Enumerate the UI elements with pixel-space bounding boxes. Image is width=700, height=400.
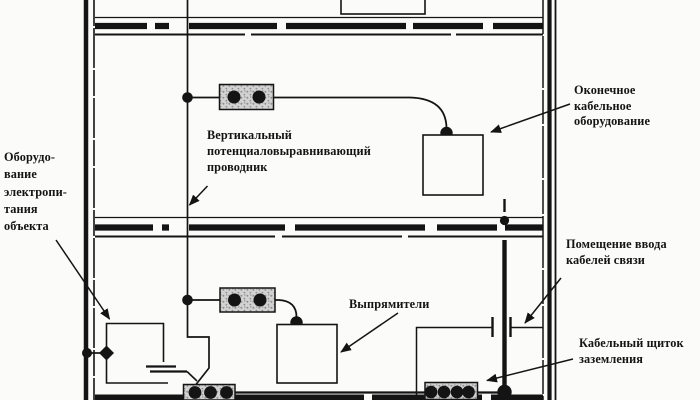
terminal-cable-equipment-box xyxy=(423,135,483,195)
busbar-terminal-dot xyxy=(254,294,267,307)
bond-diamond xyxy=(99,346,114,361)
grounding-busbar-left xyxy=(184,385,236,400)
busbar-terminal-dot xyxy=(228,91,241,104)
label-cable-entry-room: Помещение ввода кабелей связи xyxy=(566,237,667,268)
equalizing-busbar-upper xyxy=(220,85,274,110)
riser-junction-dot-upper xyxy=(182,92,193,103)
floor-slab-middle xyxy=(95,218,543,237)
leader-arrow-ground-panel xyxy=(487,359,573,381)
leader-arrow-terminal-equipment xyxy=(491,104,570,132)
grounding-diagram: Оборудо- вание электропи- тания объекта … xyxy=(0,0,700,400)
label-terminal-cable-equipment: Оконечное кабельное оборудование xyxy=(574,83,650,130)
upper-floor-equipment-box xyxy=(341,0,425,14)
leader-arrow-vertical-conductor xyxy=(190,186,208,205)
cable-riser-stub xyxy=(500,199,509,225)
leader-arrow-rectifiers xyxy=(341,313,398,352)
label-vertical-conductor: Вертикальный потенциаловыравнивающий про… xyxy=(207,127,371,175)
rectifier-box xyxy=(277,325,337,384)
right-wall xyxy=(543,0,556,400)
power-equipment-box xyxy=(107,324,169,384)
grounding-busbar-right xyxy=(425,383,478,400)
left-wall xyxy=(86,0,94,400)
busbar-terminal-dot xyxy=(253,91,266,104)
label-power-equipment: Оборудо- вание электропи- тания объекта xyxy=(4,149,67,235)
leader-arrow-power-equipment xyxy=(56,240,110,319)
wall-bond-dot xyxy=(82,348,92,358)
vertical-equalizing-conductor xyxy=(188,0,210,385)
equalizing-busbar-lower xyxy=(220,288,275,312)
riser-junction-dot-lower xyxy=(182,295,193,306)
label-rectifiers: Выпрямители xyxy=(349,296,429,312)
cable-ground-dot xyxy=(497,385,511,399)
busbar-terminal-dot xyxy=(228,294,241,307)
floor-slab-top xyxy=(95,18,543,35)
battery-symbol xyxy=(146,367,197,382)
battery-link xyxy=(187,372,197,382)
label-grounding-cable-panel: Кабельный щиток заземления xyxy=(579,336,684,367)
